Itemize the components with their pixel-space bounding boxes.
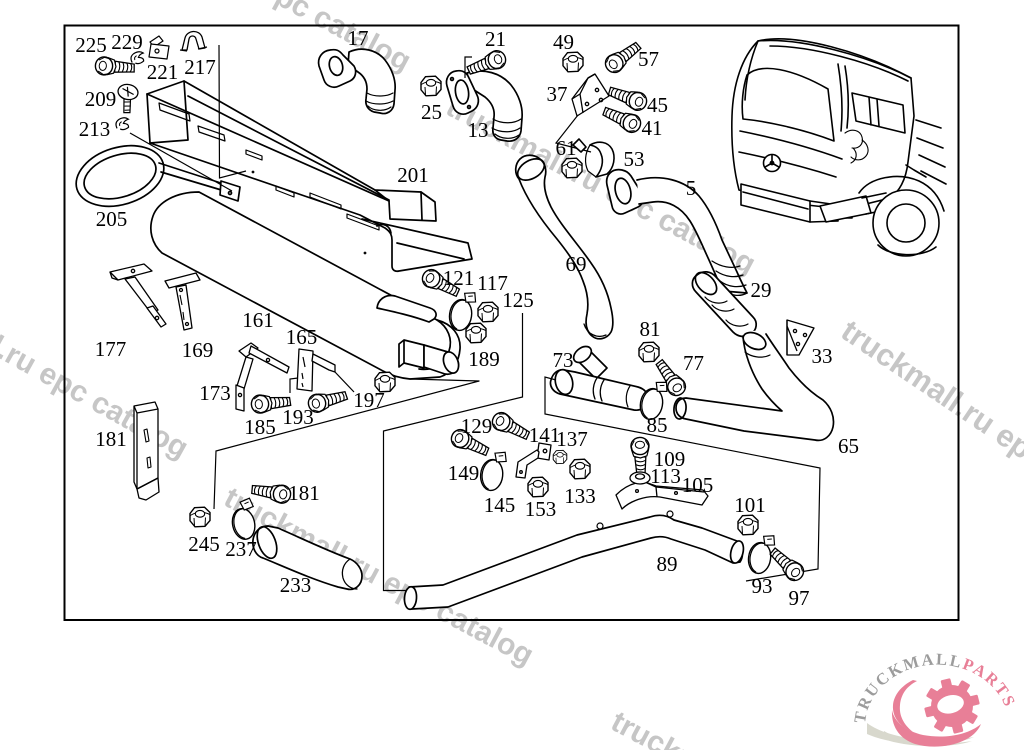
svg-text:201: 201 xyxy=(397,163,429,187)
svg-text:89: 89 xyxy=(657,552,678,576)
svg-text:245: 245 xyxy=(188,532,220,556)
svg-text:41: 41 xyxy=(642,116,663,140)
svg-text:233: 233 xyxy=(280,573,312,597)
svg-text:49: 49 xyxy=(553,30,574,54)
svg-text:225: 225 xyxy=(75,33,107,57)
svg-text:125: 125 xyxy=(502,288,534,312)
svg-text:145: 145 xyxy=(484,493,516,517)
svg-text:105: 105 xyxy=(682,473,714,497)
svg-text:13: 13 xyxy=(468,118,489,142)
svg-text:213: 213 xyxy=(79,117,111,141)
svg-text:101: 101 xyxy=(734,493,766,517)
svg-text:77: 77 xyxy=(683,351,704,375)
svg-text:209: 209 xyxy=(85,87,117,111)
svg-text:45: 45 xyxy=(647,93,668,117)
svg-text:149: 149 xyxy=(448,461,480,485)
svg-text:69: 69 xyxy=(566,252,587,276)
svg-text:25: 25 xyxy=(421,100,442,124)
svg-text:165: 165 xyxy=(286,325,318,349)
svg-text:65: 65 xyxy=(838,434,859,458)
svg-text:173: 173 xyxy=(199,381,231,405)
svg-text:5: 5 xyxy=(686,176,697,200)
svg-text:181: 181 xyxy=(95,427,127,451)
svg-text:133: 133 xyxy=(564,484,596,508)
svg-text:57: 57 xyxy=(638,47,659,71)
svg-text:113: 113 xyxy=(650,464,681,488)
svg-text:29: 29 xyxy=(751,278,772,302)
svg-text:81: 81 xyxy=(640,317,661,341)
svg-text:153: 153 xyxy=(525,497,557,521)
svg-text:53: 53 xyxy=(624,147,645,171)
svg-text:97: 97 xyxy=(789,586,810,610)
svg-text:37: 37 xyxy=(547,82,568,106)
svg-text:137: 137 xyxy=(556,427,588,451)
svg-text:93: 93 xyxy=(752,574,773,598)
svg-text:161: 161 xyxy=(242,308,274,332)
svg-text:21: 21 xyxy=(485,27,506,51)
svg-text:177: 177 xyxy=(95,337,127,361)
svg-text:185: 185 xyxy=(244,415,276,439)
svg-text:17: 17 xyxy=(348,26,369,50)
svg-text:181: 181 xyxy=(288,481,320,505)
svg-text:33: 33 xyxy=(812,344,833,368)
svg-text:217: 217 xyxy=(184,55,216,79)
svg-text:221: 221 xyxy=(147,60,179,84)
svg-text:121: 121 xyxy=(443,266,475,290)
svg-text:169: 169 xyxy=(182,338,214,362)
svg-text:197: 197 xyxy=(353,388,385,412)
svg-text:129: 129 xyxy=(461,414,493,438)
svg-text:189: 189 xyxy=(468,347,500,371)
svg-text:85: 85 xyxy=(647,413,668,437)
svg-text:61: 61 xyxy=(556,136,577,160)
svg-text:73: 73 xyxy=(553,348,574,372)
svg-text:229: 229 xyxy=(111,30,143,54)
svg-text:205: 205 xyxy=(96,207,128,231)
svg-text:237: 237 xyxy=(225,537,257,561)
svg-text:193: 193 xyxy=(282,405,314,429)
